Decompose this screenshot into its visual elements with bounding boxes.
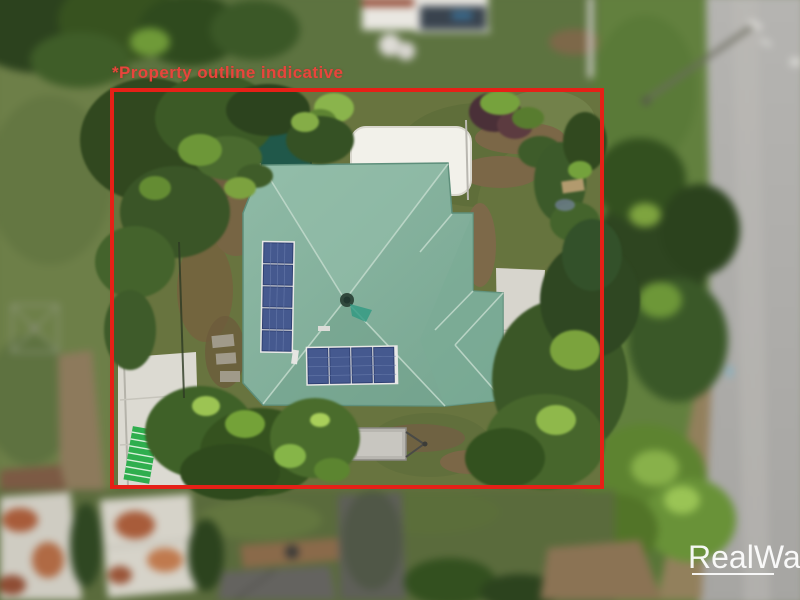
- aerial-photo: *Property outline indicative RealWay: [0, 0, 800, 600]
- solar-array-rear: [306, 345, 399, 386]
- solar-array-left: [260, 241, 295, 354]
- light-pole: [588, 0, 593, 78]
- brand-watermark: RealWay: [688, 539, 800, 576]
- photo-scene: [0, 0, 800, 600]
- brand-underline: [692, 573, 774, 575]
- property-grounds: [80, 74, 640, 500]
- disclaimer-text: *Property outline indicative: [112, 63, 343, 83]
